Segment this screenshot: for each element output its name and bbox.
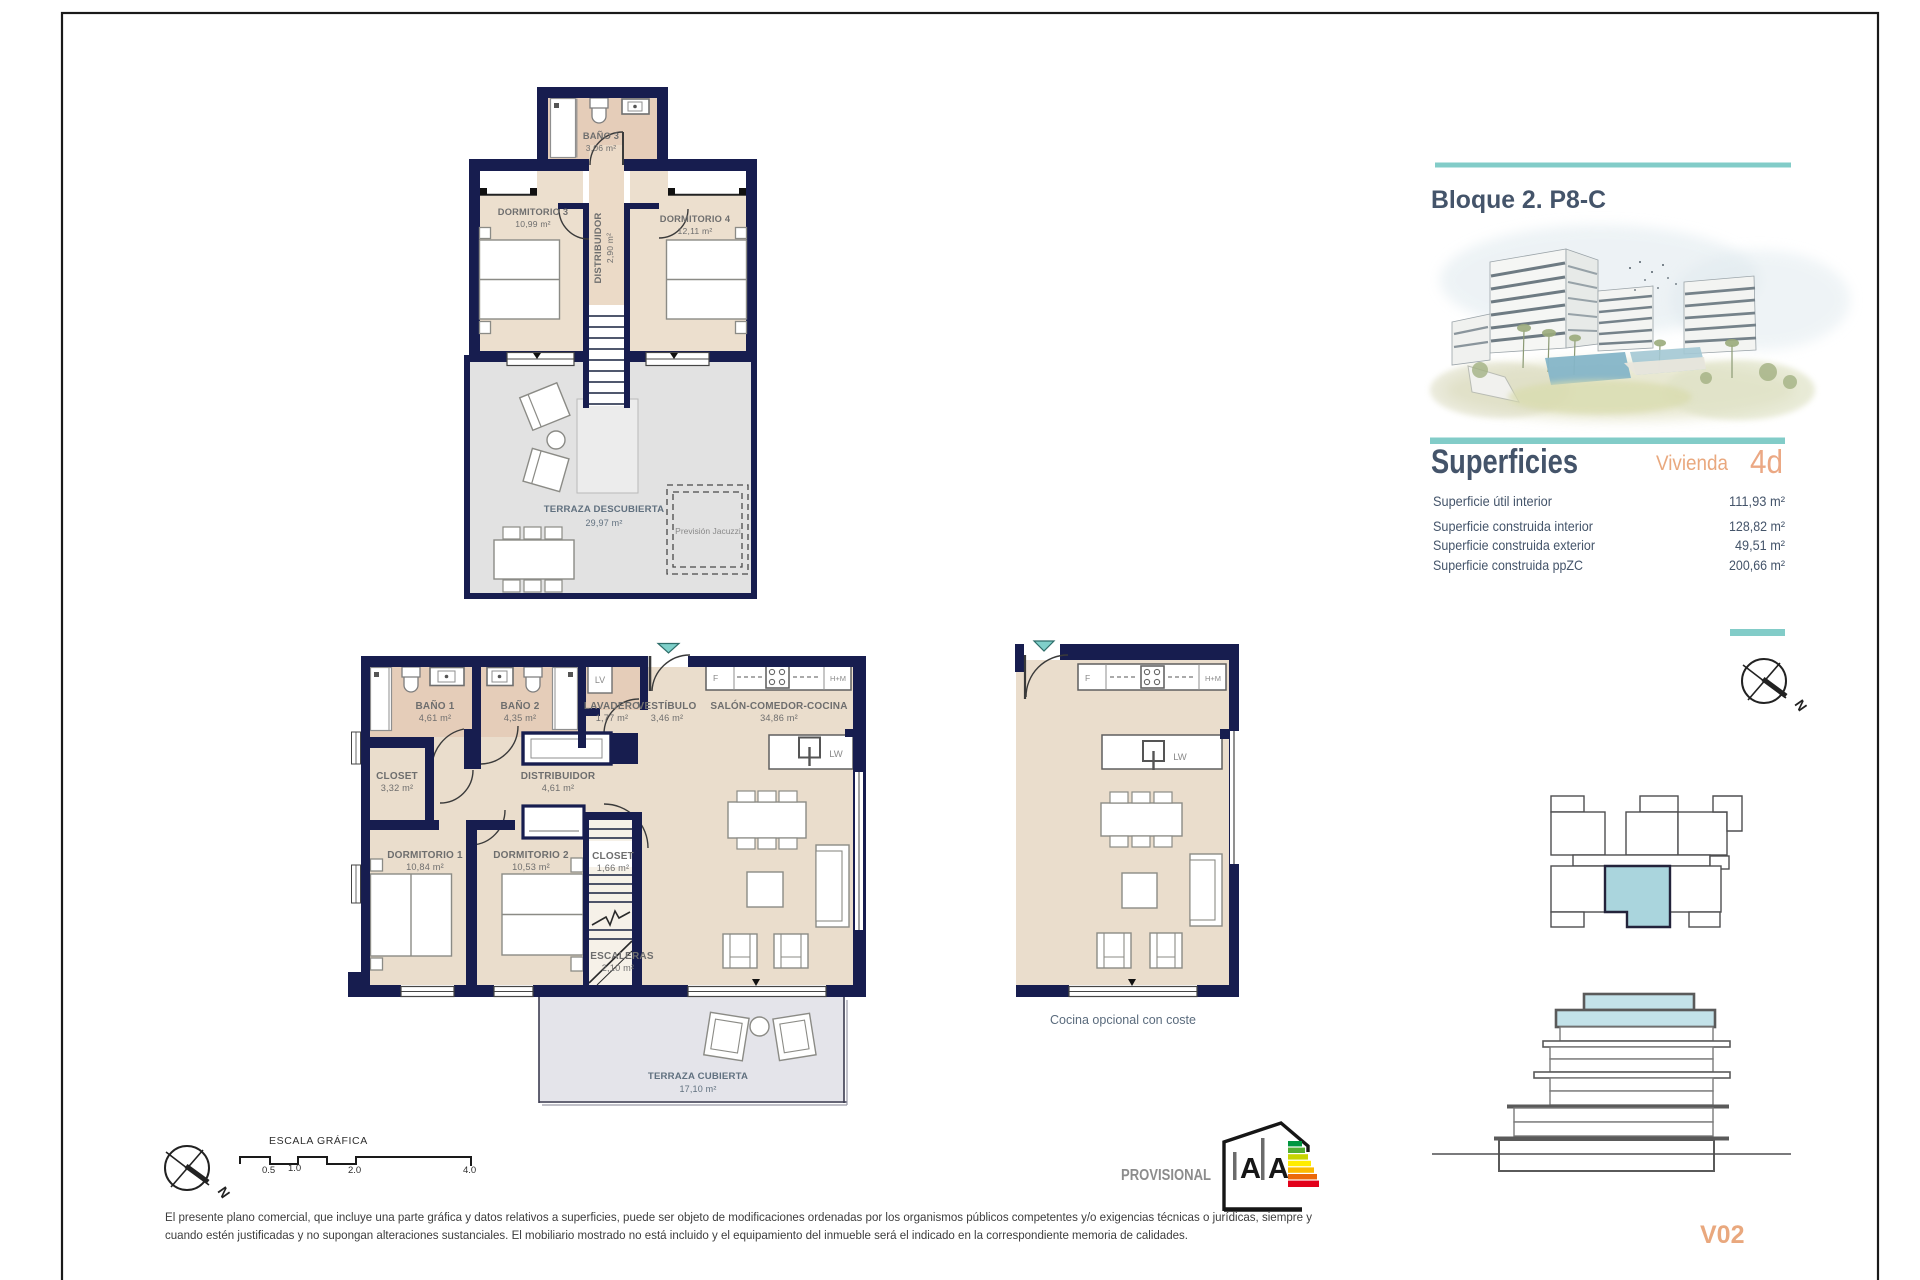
svg-text:128,82 m²: 128,82 m² [1729,519,1785,534]
svg-text:111,93 m²: 111,93 m² [1729,494,1785,509]
svg-text:V02: V02 [1700,1221,1744,1249]
svg-text:ESCALERAS: ESCALERAS [590,951,654,962]
svg-text:A: A [1240,1153,1261,1185]
svg-text:17,10 m²: 17,10 m² [679,1084,716,1094]
svg-text:cuando estén justificadas y no: cuando estén justificadas y no supongan … [165,1228,1188,1242]
svg-text:LV: LV [595,675,605,685]
svg-text:TERRAZA DESCUBIERTA: TERRAZA DESCUBIERTA [544,504,665,515]
svg-text:10,99 m²: 10,99 m² [515,219,551,229]
svg-text:10,84 m²: 10,84 m² [406,862,444,872]
svg-text:CLOSET: CLOSET [592,851,634,862]
svg-text:12,11 m²: 12,11 m² [678,226,713,236]
svg-text:3,32 m²: 3,32 m² [381,783,414,793]
svg-text:F: F [1085,673,1090,683]
svg-text:Superficie construida interior: Superficie construida interior [1433,519,1593,534]
svg-text:BAÑO 3: BAÑO 3 [583,131,619,141]
svg-text:Superficie construida exterior: Superficie construida exterior [1433,538,1595,553]
svg-text:Vivienda: Vivienda [1656,452,1728,475]
svg-text:VESTÍBULO: VESTÍBULO [637,699,696,712]
svg-text:2.0: 2.0 [348,1165,361,1176]
svg-text:3,06 m²: 3,06 m² [586,143,617,153]
svg-text:CLOSET: CLOSET [376,771,418,782]
svg-text:BAÑO 1: BAÑO 1 [416,699,455,712]
svg-text:BAÑO 2: BAÑO 2 [501,699,540,712]
svg-text:2,10 m²: 2,10 m² [602,963,635,973]
svg-text:A: A [1268,1153,1289,1185]
svg-text:4,35 m²: 4,35 m² [504,713,537,723]
svg-text:10,53 m²: 10,53 m² [512,862,550,872]
svg-text:3,46 m²: 3,46 m² [651,713,684,723]
svg-text:Bloque 2. P8-C: Bloque 2. P8-C [1431,186,1606,214]
svg-text:LAVADERO: LAVADERO [584,701,640,712]
svg-text:El presente plano comercial, q: El presente plano comercial, que incluye… [165,1210,1313,1224]
svg-text:DORMITORIO 2: DORMITORIO 2 [493,850,569,861]
svg-text:4,61 m²: 4,61 m² [419,713,452,723]
svg-text:2,90 m²: 2,90 m² [605,233,615,263]
svg-text:Superficie útil interior: Superficie útil interior [1433,494,1552,509]
svg-text:Superficies: Superficies [1431,443,1578,481]
svg-text:49,51 m²: 49,51 m² [1735,538,1785,553]
svg-text:1.0: 1.0 [288,1163,301,1174]
svg-text:29,97 m²: 29,97 m² [585,518,622,528]
svg-text:TERRAZA CUBIERTA: TERRAZA CUBIERTA [648,1071,748,1082]
svg-text:SALÓN-COMEDOR-COCINA: SALÓN-COMEDOR-COCINA [710,699,847,712]
svg-text:H+M: H+M [830,674,846,683]
svg-text:DORMITORIO 1: DORMITORIO 1 [387,850,463,861]
svg-text:4,61 m²: 4,61 m² [542,783,575,793]
svg-text:H+M: H+M [1205,674,1221,683]
svg-text:LW: LW [829,749,843,760]
svg-text:F: F [713,673,718,683]
svg-text:DORMITORIO 3: DORMITORIO 3 [498,207,568,217]
svg-text:0.5: 0.5 [262,1165,275,1176]
svg-text:4.0: 4.0 [463,1165,476,1176]
svg-text:DISTRIBUIDOR: DISTRIBUIDOR [521,771,596,782]
svg-text:DISTRIBUIDOR: DISTRIBUIDOR [593,212,604,283]
svg-text:1,77 m²: 1,77 m² [596,713,629,723]
svg-text:1,66 m²: 1,66 m² [597,863,630,873]
svg-text:Previsión Jacuzzi: Previsión Jacuzzi [675,526,741,536]
svg-text:ESCALA GRÁFICA: ESCALA GRÁFICA [269,1134,368,1147]
svg-text:PROVISIONAL: PROVISIONAL [1121,1167,1211,1184]
svg-text:LW: LW [1173,752,1187,763]
svg-text:Superficie construida ppZC: Superficie construida ppZC [1433,558,1583,573]
svg-text:DORMITORIO 4: DORMITORIO 4 [660,214,731,224]
svg-text:Cocina opcional con coste: Cocina opcional con coste [1050,1013,1196,1027]
svg-text:200,66 m²: 200,66 m² [1729,558,1785,573]
svg-text:34,86 m²: 34,86 m² [760,713,798,723]
svg-text:4d: 4d [1750,443,1783,480]
